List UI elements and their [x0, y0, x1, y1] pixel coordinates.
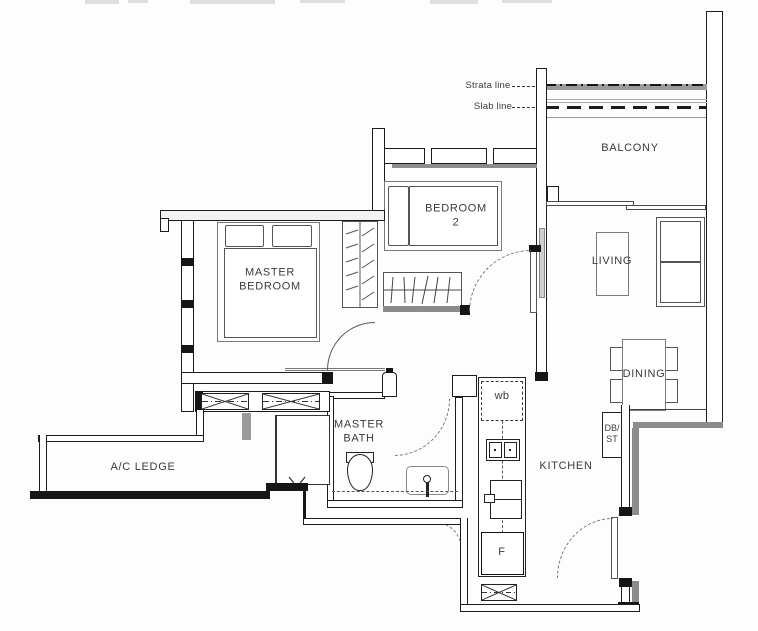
bottom-wall — [460, 604, 640, 612]
slab-line-label: Slab line — [474, 101, 512, 113]
master-bedroom-door-swing — [327, 322, 375, 370]
window-joint — [181, 345, 194, 353]
strata-line-label: Strata line — [466, 80, 511, 92]
ac-cross-icon — [263, 394, 319, 409]
window-joint — [181, 300, 194, 308]
cropped-text-remnant — [300, 0, 345, 3]
wardrobe-hanging-icon — [343, 222, 377, 307]
bedroom2-door-leaf — [530, 250, 537, 313]
door-jamb — [619, 578, 632, 587]
outline-wall — [303, 518, 468, 525]
bedroom2-label: BEDROOM 2 — [425, 202, 487, 230]
window-joint — [181, 258, 194, 266]
sink-drain — [509, 449, 511, 451]
master-bedroom-south-wall — [181, 372, 332, 384]
cooktop-line — [491, 499, 521, 500]
cooktop-knob — [484, 494, 495, 503]
cropped-text-remnant — [190, 0, 275, 4]
window-sill — [392, 164, 537, 168]
kitchen-right-wall — [621, 405, 630, 516]
ledge-left-wall — [39, 435, 47, 495]
ac-ledge-label: A/C LEDGE — [111, 461, 176, 475]
door-jamb — [619, 507, 632, 516]
bath-door-pivot — [382, 372, 397, 397]
master-bath-label: MASTER BATH — [334, 418, 384, 446]
pillow — [272, 225, 312, 247]
cropped-text-remnant — [85, 0, 119, 4]
bedroom2-window-wall — [384, 148, 537, 164]
balcony-label: BALCONY — [601, 142, 658, 156]
wall-cap — [322, 372, 333, 384]
wall-pier — [242, 413, 251, 440]
outline-wall — [303, 488, 306, 522]
vent-cross-icon — [482, 585, 516, 600]
sofa-cushion — [660, 262, 701, 303]
master-bedroom-label: MASTER BEDROOM — [239, 266, 301, 294]
door-jamb — [386, 368, 393, 373]
entry-door-swing — [557, 518, 613, 578]
pillow — [388, 186, 409, 246]
dining-label: DINING — [623, 368, 666, 382]
dining-chair — [665, 379, 678, 403]
outline-wall — [460, 518, 468, 611]
sink-drain — [494, 449, 496, 451]
wardrobe-sill — [383, 306, 468, 312]
floor-plan: Strata line Slab line BALCONY BEDROOM 2 — [0, 0, 758, 631]
shower-stall — [275, 415, 330, 485]
strata-dashdot-line — [545, 84, 707, 86]
living-label: LIVING — [592, 255, 632, 269]
dining-chair — [665, 347, 678, 371]
cropped-text-remnant — [430, 0, 478, 4]
bath-bottom-wall — [327, 500, 463, 508]
ledge-top-wall — [38, 435, 204, 442]
sofa-cushion — [660, 221, 701, 262]
cropped-text-remnant — [502, 0, 552, 3]
slab-dashed-line — [545, 106, 707, 109]
sliding-door-panel — [546, 201, 634, 206]
wash-bay-label: wb — [495, 390, 510, 404]
db-st-label: DB/ ST — [604, 423, 619, 446]
window-mullion — [424, 148, 432, 164]
window-mullion — [486, 148, 494, 164]
ac-cross-icon — [202, 394, 248, 409]
pillow — [225, 225, 264, 247]
dining-floor-line — [621, 409, 707, 410]
wall-cap — [535, 372, 548, 381]
shower-screen-line — [332, 491, 458, 492]
ledge-bottom-wall — [30, 491, 270, 499]
bedroom2-right-window — [539, 228, 545, 298]
kitchen-wall-stub — [452, 375, 477, 397]
kitchen-label: KITCHEN — [539, 460, 592, 474]
party-wall — [633, 422, 723, 428]
balcony-gray-line — [545, 99, 707, 103]
bedroom2-right-wall — [536, 68, 547, 381]
outline-wall — [266, 483, 308, 491]
bedroom2-door-swing — [469, 250, 531, 312]
wardrobe-hanging-icon — [384, 273, 461, 307]
balcony-edge-line — [545, 117, 706, 118]
cabinet-door-swing — [436, 522, 462, 550]
bath-door-swing — [394, 399, 450, 456]
wall-end — [160, 218, 169, 232]
sliding-door-panel — [626, 205, 706, 210]
toilet-bowl — [347, 454, 373, 491]
cropped-text-remnant — [128, 0, 148, 3]
fridge-label: F — [498, 546, 505, 560]
faucet-stem — [426, 482, 429, 497]
party-wall — [632, 428, 639, 515]
bath-top-wall — [327, 392, 385, 399]
right-exterior-wall — [706, 11, 723, 425]
